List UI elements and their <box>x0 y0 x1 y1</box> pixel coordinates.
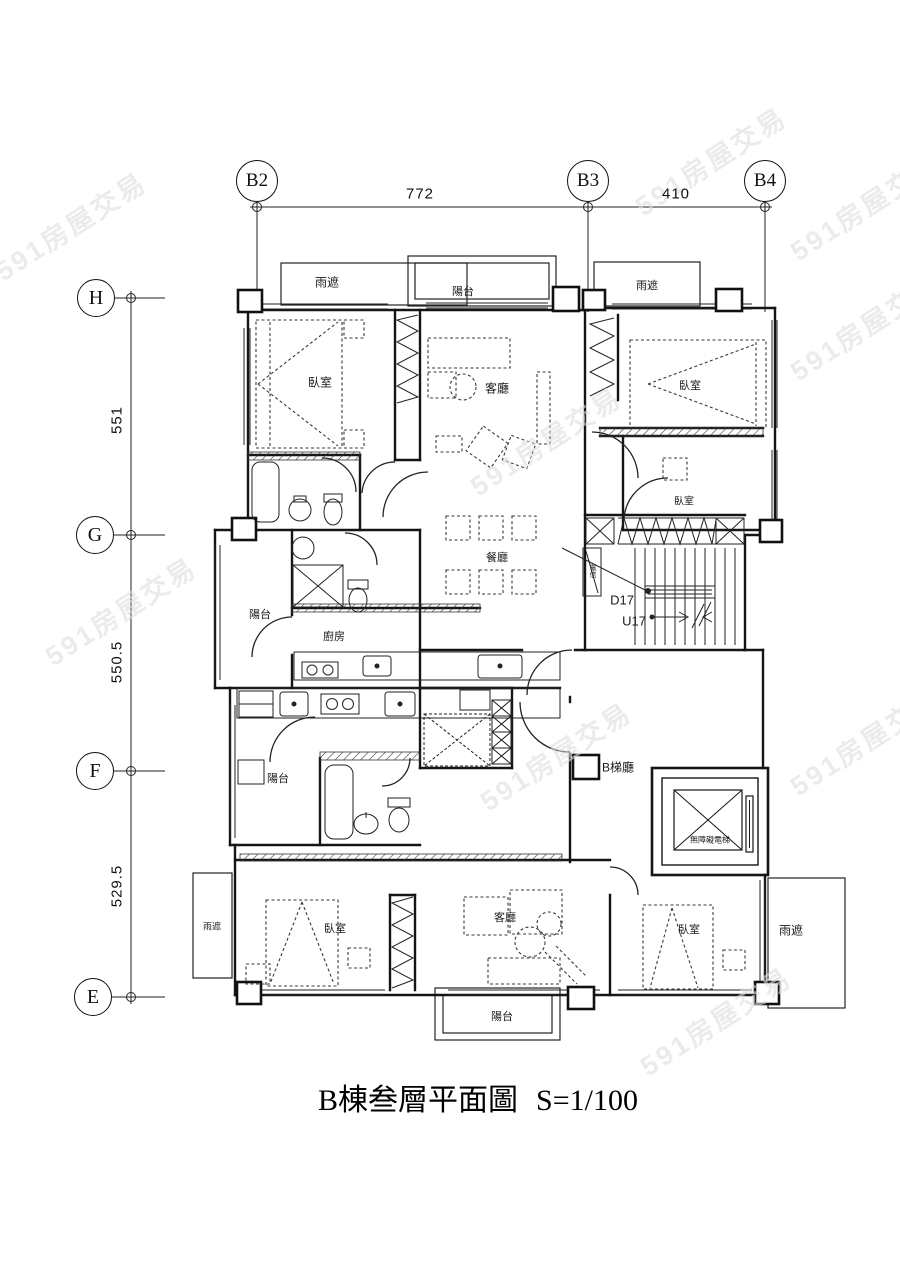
dimension-label: 410 <box>662 186 690 203</box>
grid-lines <box>111 200 772 1004</box>
room-label-balcony-lower-left: 陽台 <box>267 770 289 786</box>
room-label-living-top: 客廳 <box>485 380 509 397</box>
doors <box>252 432 668 895</box>
grid-bubble-F: F <box>76 752 114 790</box>
dimension-label: 551 <box>109 406 126 434</box>
dimension-label: 529.5 <box>109 865 126 908</box>
room-label-kitchen: 廚房 <box>323 628 345 644</box>
drawing-scale: S=1/100 <box>536 1084 638 1117</box>
room-label-rain-cover-top-left: 雨遮 <box>315 274 339 291</box>
grid-bubble-G: G <box>76 516 114 554</box>
room-label-balcony-bottom: 陽台 <box>491 1008 513 1024</box>
stairs <box>562 518 744 645</box>
room-label-telecom-box: 電信 <box>587 564 597 578</box>
room-label-dining: 餐廳 <box>486 549 508 565</box>
room-label-rain-cover-top-right: 雨遮 <box>636 277 658 293</box>
room-label-rain-cover-bot-left: 雨遮 <box>203 920 221 933</box>
grid-bubble-E: E <box>74 978 112 1016</box>
floor-plan-page: 591房屋交易591房屋交易591房屋交易591房屋交易591房屋交易591房屋… <box>0 0 900 1273</box>
dimension-label: 772 <box>406 186 434 203</box>
room-label-living-bottom: 客廳 <box>494 909 516 925</box>
walls <box>215 300 775 995</box>
room-label-stair-up: U17 <box>622 614 646 629</box>
elevator-shaft <box>652 768 768 875</box>
room-label-bedroom-top-left: 臥室 <box>308 374 332 391</box>
room-label-elevator: 無障礙電梯 <box>690 835 730 846</box>
room-label-balcony-top: 陽台 <box>452 283 474 299</box>
room-label-bedroom-top-right: 臥室 <box>679 377 701 393</box>
room-label-stair-down: D17 <box>610 593 634 608</box>
grid-bubble-B4: B4 <box>744 160 786 202</box>
drawing-title-name: B棟叁層平面圖 <box>318 1084 518 1117</box>
grid-bubble-H: H <box>77 279 115 317</box>
room-label-balcony-mid-left: 陽台 <box>249 606 271 622</box>
room-label-stair-hall: B梯廳 <box>602 759 634 776</box>
grid-bubble-B3: B3 <box>567 160 609 202</box>
room-label-bedroom-bottom-left: 臥室 <box>324 920 346 936</box>
room-label-bedroom-mid-right: 臥室 <box>674 493 694 508</box>
rain-covers <box>193 256 845 1040</box>
drawing-title: B棟叁層平面圖S=1/100 <box>318 1075 638 1119</box>
grid-bubble-B2: B2 <box>236 160 278 202</box>
room-label-rain-cover-bot-right: 雨遮 <box>779 922 803 939</box>
dimension-label: 550.5 <box>109 641 126 684</box>
room-label-bedroom-bottom-right: 臥室 <box>678 921 700 937</box>
